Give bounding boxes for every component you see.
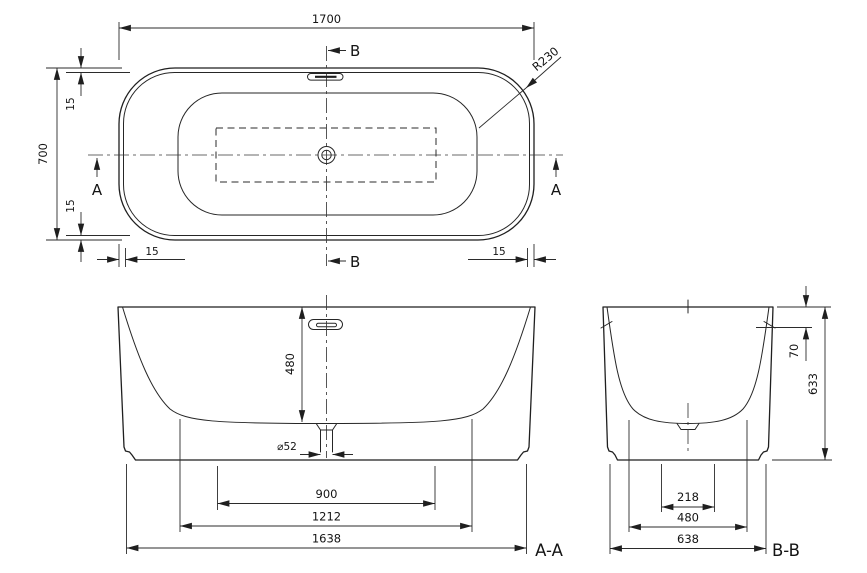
dim-rim-label: 15 bbox=[492, 246, 505, 258]
dim-base-mid-label: 1212 bbox=[312, 510, 341, 524]
dim-drain-label: ⌀52 bbox=[277, 441, 297, 453]
section-marker-a-right: A bbox=[551, 158, 562, 199]
dimension-rim-15-lower-left: 15 bbox=[65, 199, 130, 262]
dimension-height-633: 633 bbox=[772, 307, 832, 460]
dim-rim-label: 15 bbox=[145, 246, 158, 258]
dim-overflow-label: 70 bbox=[787, 344, 801, 359]
overflow-front bbox=[309, 320, 343, 330]
dimension-rim-15-bottom-right: 15 bbox=[468, 244, 556, 267]
dimension-rim-15-upper-left: 15 bbox=[65, 48, 130, 111]
basin-outline bbox=[178, 93, 477, 215]
section-bb-view: 70 633 218 480 638 B-B bbox=[601, 286, 832, 560]
dimension-base-218: 218 bbox=[662, 464, 715, 512]
section-marker-b-bottom: B bbox=[328, 253, 360, 271]
drawing-canvas: 1700 700 15 15 15 bbox=[0, 0, 867, 573]
section-aa-label: A-A bbox=[535, 541, 564, 560]
top-view: 1700 700 15 15 15 bbox=[36, 12, 563, 271]
dim-depth-label: 480 bbox=[283, 353, 297, 375]
section-a-label: A bbox=[92, 181, 103, 199]
dim-base-mid-label: 480 bbox=[677, 511, 699, 525]
section-b-label: B bbox=[350, 253, 360, 271]
bathtub-technical-drawing: 1700 700 15 15 15 bbox=[0, 0, 867, 573]
waterline-tick-right bbox=[764, 322, 775, 329]
section-a-label: A bbox=[551, 181, 562, 199]
section-aa-view: 480 ⌀52 900 1212 1638 A-A bbox=[118, 295, 564, 560]
dimension-base-638: 638 bbox=[610, 464, 766, 554]
dimension-base-900: 900 bbox=[218, 466, 436, 510]
section-marker-b-top: B bbox=[328, 42, 360, 60]
dimension-base-1212: 1212 bbox=[180, 419, 472, 532]
dim-height-label: 633 bbox=[806, 373, 820, 395]
dim-base-inner-label: 900 bbox=[316, 487, 338, 501]
dimension-rim-15-bottom-left: 15 bbox=[97, 244, 185, 267]
dimension-depth-480: 480 bbox=[283, 307, 302, 422]
dim-base-outer-label: 1638 bbox=[312, 532, 341, 546]
dimension-width-700: 700 bbox=[36, 68, 122, 240]
waterline-tick-left bbox=[601, 322, 612, 329]
dimension-drain-52: ⌀52 bbox=[277, 441, 353, 455]
section-b-label: B bbox=[350, 42, 360, 60]
section-marker-a-left: A bbox=[92, 158, 103, 199]
dim-length-label: 1700 bbox=[312, 12, 341, 26]
section-bb-label: B-B bbox=[772, 541, 800, 560]
dim-rim-label: 15 bbox=[65, 97, 77, 110]
dim-rim-label: 15 bbox=[65, 199, 77, 212]
radius-callout: R230 bbox=[479, 44, 561, 128]
dim-base-outer-label: 638 bbox=[677, 532, 699, 546]
dim-width-label: 700 bbox=[36, 143, 50, 165]
dim-base-inner-label: 218 bbox=[677, 490, 699, 504]
overflow-plan bbox=[308, 74, 344, 81]
